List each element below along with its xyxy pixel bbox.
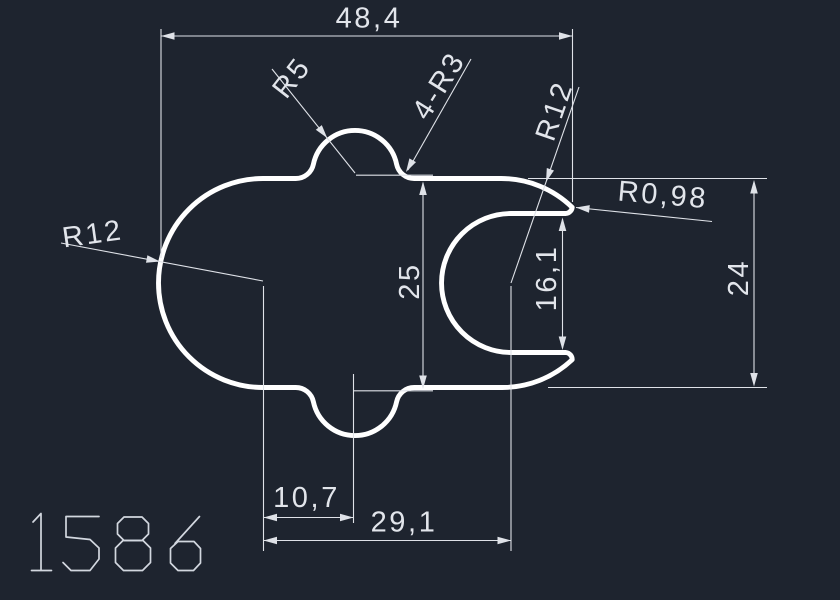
svg-text:48,4: 48,4 — [336, 3, 403, 35]
svg-text:25: 25 — [394, 262, 426, 299]
svg-text:10,7: 10,7 — [273, 482, 340, 514]
svg-text:24: 24 — [723, 259, 755, 296]
svg-text:16,1: 16,1 — [531, 245, 563, 312]
svg-text:29,1: 29,1 — [371, 507, 438, 539]
